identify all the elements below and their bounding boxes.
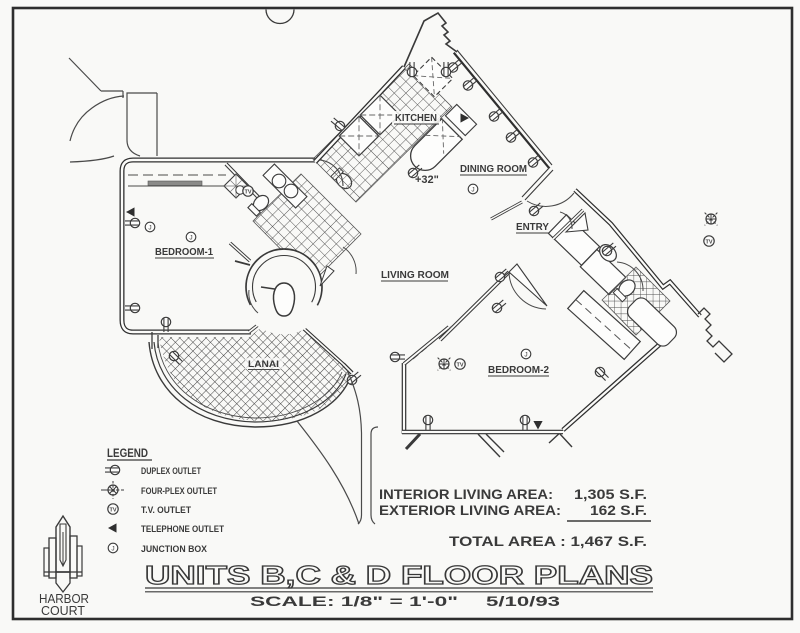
svg-text:FOUR-PLEX OUTLET: FOUR-PLEX OUTLET: [141, 486, 217, 497]
svg-text:UNITS B,C & D FLOOR PLANS: UNITS B,C & D FLOOR PLANS: [145, 560, 653, 590]
svg-text:BEDROOM-1: BEDROOM-1: [155, 247, 213, 258]
svg-text:ENTRY: ENTRY: [516, 222, 549, 233]
svg-text:KITCHEN: KITCHEN: [395, 113, 437, 124]
svg-text:DUPLEX OUTLET: DUPLEX OUTLET: [141, 466, 201, 477]
svg-text:TELEPHONE OUTLET: TELEPHONE OUTLET: [141, 524, 224, 535]
svg-text:+32": +32": [415, 174, 439, 186]
svg-text:LIVING ROOM: LIVING ROOM: [381, 270, 449, 281]
svg-text:1,305 S.F.: 1,305 S.F.: [574, 487, 647, 502]
svg-text:BEDROOM-2: BEDROOM-2: [488, 365, 549, 376]
svg-text:LEGEND: LEGEND: [107, 446, 148, 460]
svg-text:COURT: COURT: [41, 603, 85, 618]
svg-text:DINING ROOM: DINING ROOM: [460, 164, 527, 175]
svg-text:TOTAL AREA : 1,467 S.F.: TOTAL AREA : 1,467 S.F.: [449, 534, 647, 549]
svg-text:SCALE: 1/8" = 1'-0": SCALE: 1/8" = 1'-0": [250, 594, 458, 609]
svg-text:162 S.F.: 162 S.F.: [590, 503, 647, 518]
svg-text:T.V. OUTLET: T.V. OUTLET: [141, 505, 191, 516]
svg-text:EXTERIOR LIVING AREA:: EXTERIOR LIVING AREA:: [379, 503, 561, 518]
svg-text:5/10/93: 5/10/93: [486, 593, 560, 609]
svg-text:LANAI: LANAI: [248, 359, 279, 370]
svg-text:JUNCTION BOX: JUNCTION BOX: [141, 544, 208, 555]
svg-text:INTERIOR LIVING AREA:: INTERIOR LIVING AREA:: [379, 487, 553, 502]
